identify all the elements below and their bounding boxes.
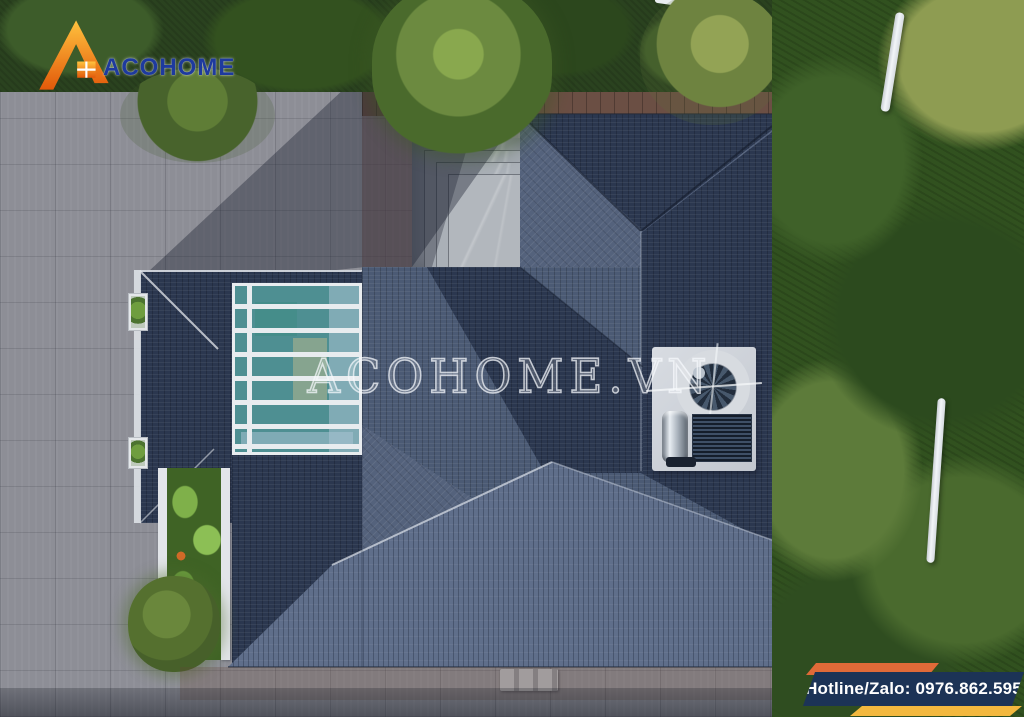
tank-mount <box>666 457 696 467</box>
watermark-text: ACOHOME.VN <box>320 345 700 407</box>
garden-rail <box>221 468 230 660</box>
palm-canopy <box>640 0 785 125</box>
brand-name: ACOHOME <box>103 54 235 82</box>
planter-box <box>128 437 148 469</box>
plant <box>131 296 145 328</box>
solar-water-tank <box>662 411 688 463</box>
skylight-bar <box>235 328 359 333</box>
skylight-bar <box>235 304 359 309</box>
aerial-villa-render: ACOHOME.VN ACOHOME Hotline/Zalo: 0976.86… <box>0 0 1024 717</box>
tree-canopy <box>372 0 552 154</box>
banner-body: Hotline/Zalo: 0976.862.595 <box>803 672 1024 706</box>
banner-yellow-stripe <box>850 706 1022 716</box>
skylight-bar <box>235 424 359 429</box>
plant <box>131 440 145 466</box>
skylight-bar <box>235 444 359 449</box>
trees-right <box>772 0 1024 717</box>
hotline-text: Hotline/Zalo: 0976.862.595 <box>805 679 1022 699</box>
bush <box>128 576 220 672</box>
hotline-banner: Hotline/Zalo: 0976.862.595 <box>795 655 1024 717</box>
house-logo-icon <box>37 16 113 94</box>
planter-box <box>128 293 148 331</box>
brand-logo: ACOHOME <box>25 8 255 100</box>
solar-collector-tubes <box>692 414 752 462</box>
